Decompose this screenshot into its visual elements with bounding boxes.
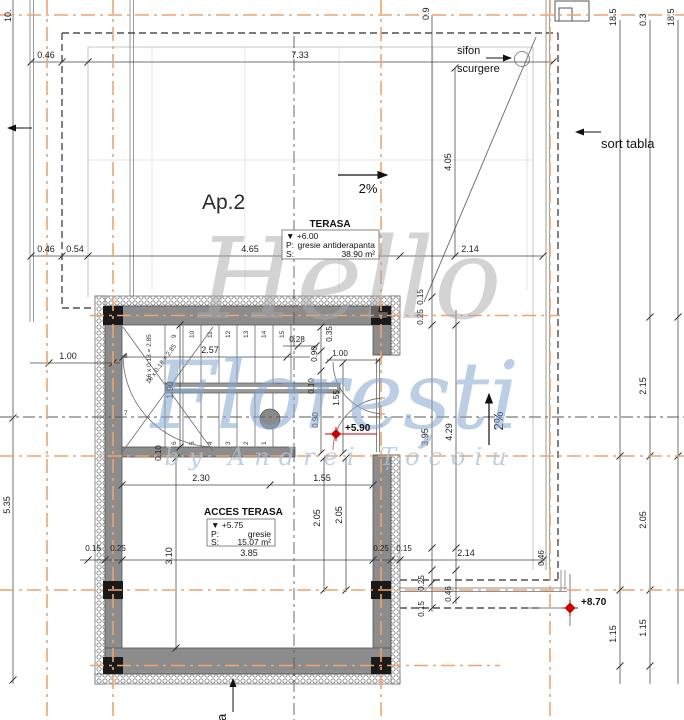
dim: 5.35 xyxy=(2,496,12,514)
dim: 1.15 xyxy=(608,625,618,643)
level-value-roof: +8.70 xyxy=(581,597,607,608)
acces-s-label: S: xyxy=(211,537,219,547)
dim: 1.15 xyxy=(638,619,648,637)
dim: 0.15 xyxy=(396,544,412,553)
level-marker-roof: +8.70 xyxy=(562,597,607,616)
dim: 0.25 xyxy=(417,575,426,591)
terasa-s-value: 38.90 m² xyxy=(341,249,375,259)
drain-label-line1: sifon xyxy=(457,45,480,57)
dim: 7.33 xyxy=(291,50,309,60)
dim: 2.14 xyxy=(457,548,475,558)
dim: 0.15 xyxy=(85,544,101,553)
floor-plan-page: 16 x 0.18 = 2.85 6 5 4 3 2 1 7 8 9 10 11… xyxy=(0,0,684,720)
dim: 0.46 xyxy=(37,244,55,254)
dim: 0.25 xyxy=(110,544,126,553)
slope-label-top: 2% xyxy=(359,181,378,196)
step-number: 10 xyxy=(189,330,196,338)
sort-tabla-label: sort tabla xyxy=(601,136,655,151)
dim: 1.55 xyxy=(313,473,331,483)
bottom-edge-label: tabla xyxy=(214,713,229,720)
level-value-stair: +5.90 xyxy=(345,423,371,434)
dim: 0.3 xyxy=(638,13,648,26)
dim: 4.05 xyxy=(443,153,453,171)
dim: 0.54 xyxy=(66,244,84,254)
dim: 2.30 xyxy=(192,473,210,483)
level-diamond xyxy=(565,603,576,614)
dim: 1.00 xyxy=(59,351,77,361)
dim: 0.9 xyxy=(421,7,431,20)
dim: 2.05 xyxy=(312,509,322,527)
dim: 0.15 xyxy=(417,601,426,617)
drain-label-line2: scurgere xyxy=(457,63,500,75)
apartment-label: Ap.2 xyxy=(202,191,245,214)
dim: 18.5 xyxy=(666,8,676,26)
step-number: 7 xyxy=(124,410,128,417)
dim: 18.5 xyxy=(608,8,618,26)
dim: 2.05 xyxy=(638,511,648,529)
floor-plan-drawing: 16 x 0.18 = 2.85 6 5 4 3 2 1 7 8 9 10 11… xyxy=(0,0,684,720)
dim: 0.46 xyxy=(444,586,453,602)
dim: 2.05 xyxy=(334,506,344,524)
watermark-byline: by Andrei Țocoiu xyxy=(164,443,515,471)
acces-info: ACCES TERASA ▼ +5.75 P: gresie S: 15.07 … xyxy=(204,507,283,547)
dim: 3.10 xyxy=(164,547,174,565)
dim: 0.46 xyxy=(537,550,546,566)
dim: 2.15 xyxy=(638,377,648,395)
terasa-s-label: S: xyxy=(286,249,294,259)
dim: 0.46 xyxy=(37,50,55,60)
dim: 3.85 xyxy=(240,548,258,558)
step-number: 9 xyxy=(171,334,178,338)
acces-title: ACCES TERASA xyxy=(204,507,283,518)
acces-s-value: 15.07 m² xyxy=(237,537,271,547)
dim: 10. xyxy=(3,9,13,22)
dim: 0.25 xyxy=(373,544,389,553)
terasa-title: TERASA xyxy=(309,219,350,230)
chimney-detail xyxy=(555,1,589,21)
